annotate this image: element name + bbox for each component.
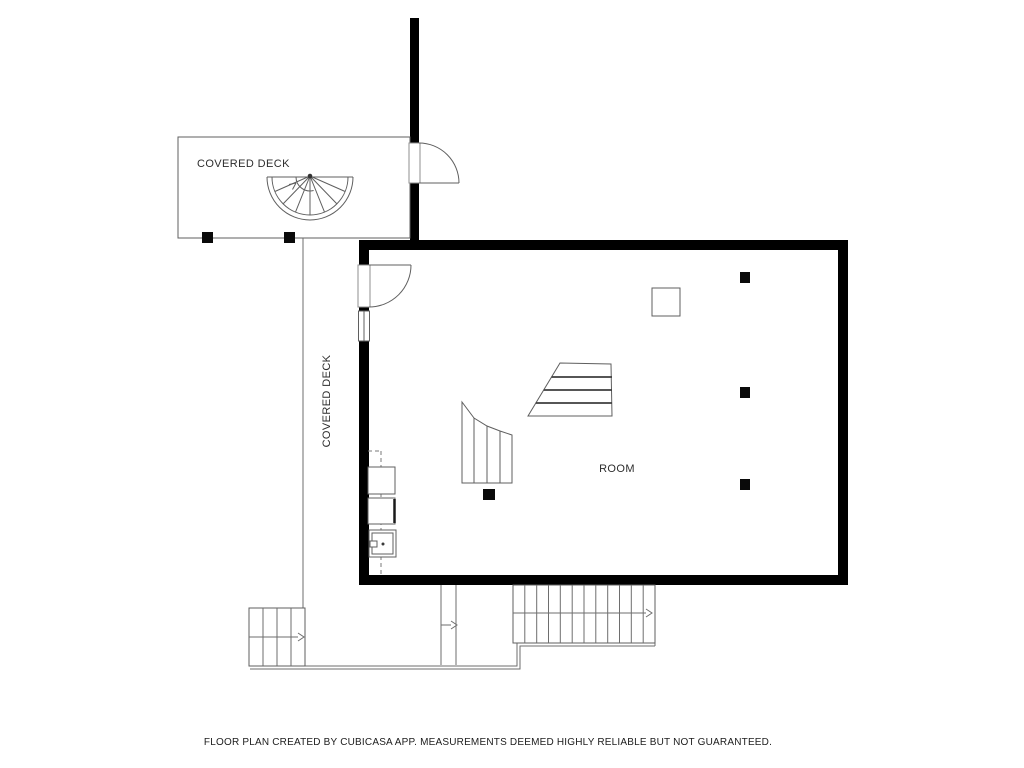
stairs-bottom-right bbox=[513, 585, 655, 643]
exterior-wall-top bbox=[410, 18, 419, 240]
room-walls bbox=[359, 240, 848, 585]
stairs-winder bbox=[462, 402, 512, 500]
covered-deck-top bbox=[178, 137, 410, 243]
wall-left-segment bbox=[359, 341, 369, 575]
room-label-covered-deck-top: COVERED DECK bbox=[197, 158, 290, 170]
wall-top bbox=[359, 240, 848, 250]
room-window bbox=[359, 311, 370, 341]
wall-segment bbox=[410, 183, 419, 240]
footer-disclaimer: FLOOR PLAN CREATED BY CUBICASA APP. MEAS… bbox=[204, 737, 772, 748]
stairs-upper bbox=[528, 363, 612, 416]
room-door bbox=[358, 265, 411, 307]
stair-treads bbox=[536, 377, 612, 403]
room-label-room: ROOM bbox=[599, 463, 635, 475]
chimney-box bbox=[652, 288, 680, 316]
room-posts bbox=[740, 272, 750, 490]
wall-left-segment bbox=[359, 307, 369, 311]
door-frame bbox=[358, 265, 370, 307]
walkway-edge-outer bbox=[250, 643, 655, 669]
door-swing-arc bbox=[369, 265, 411, 307]
floor-plan-canvas: COVERED DECK COVERED DECK ROOM FLOOR PLA… bbox=[0, 0, 1024, 768]
wall-segment bbox=[410, 18, 419, 143]
stair-hub bbox=[308, 174, 313, 179]
stairs-bottom-left bbox=[249, 608, 305, 666]
post bbox=[483, 489, 495, 500]
deck-post bbox=[284, 232, 295, 243]
post bbox=[740, 387, 750, 398]
door-frame bbox=[409, 143, 420, 183]
appliance-knob bbox=[382, 543, 385, 546]
wall-right bbox=[838, 240, 848, 585]
cabinet bbox=[368, 498, 395, 524]
post bbox=[740, 479, 750, 490]
door-swing-arc bbox=[419, 143, 459, 183]
appliance-handle bbox=[370, 541, 377, 547]
utility-fixtures bbox=[368, 451, 396, 575]
wall-left-segment bbox=[359, 240, 369, 265]
floor-plan: COVERED DECK COVERED DECK ROOM FLOOR PLA… bbox=[0, 0, 1024, 768]
stair-risers bbox=[474, 418, 500, 483]
deck-entry-door bbox=[409, 143, 459, 183]
cabinet bbox=[368, 467, 395, 494]
direction-arrow-icon bbox=[441, 621, 457, 629]
post bbox=[740, 272, 750, 283]
deck-post bbox=[202, 232, 213, 243]
room-label-covered-deck-side: COVERED DECK bbox=[321, 354, 333, 447]
wall-bottom bbox=[359, 575, 848, 585]
